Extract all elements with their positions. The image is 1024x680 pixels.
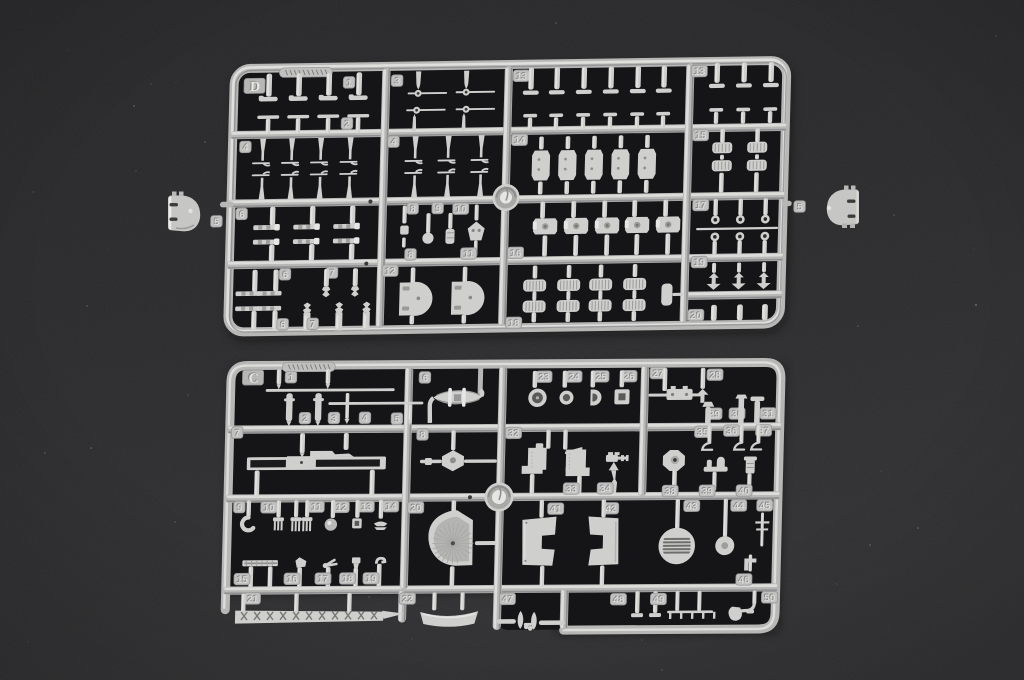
- svg-text:10: 10: [264, 503, 276, 514]
- svg-text:5: 5: [214, 217, 220, 228]
- svg-text:38: 38: [665, 487, 677, 498]
- svg-text:16: 16: [510, 249, 522, 260]
- svg-text:6: 6: [283, 270, 289, 281]
- svg-text:42: 42: [605, 504, 617, 515]
- svg-text:17: 17: [695, 201, 707, 212]
- svg-text:7: 7: [330, 268, 336, 279]
- svg-text:8: 8: [420, 430, 426, 441]
- svg-text:D: D: [250, 80, 261, 95]
- svg-text:4: 4: [391, 138, 397, 149]
- svg-text:22: 22: [402, 594, 414, 605]
- svg-text:1: 1: [289, 373, 295, 384]
- svg-text:14: 14: [386, 502, 398, 513]
- svg-text:5: 5: [394, 415, 400, 426]
- svg-text:19: 19: [366, 574, 378, 585]
- svg-text:35: 35: [697, 428, 709, 439]
- svg-text:28: 28: [710, 371, 722, 382]
- svg-text:1: 1: [347, 78, 353, 89]
- svg-text:11: 11: [464, 249, 475, 260]
- svg-text:12: 12: [336, 503, 348, 514]
- svg-text:13: 13: [694, 67, 706, 78]
- svg-text:6: 6: [239, 210, 245, 221]
- svg-text:15: 15: [695, 131, 707, 142]
- svg-text:25: 25: [596, 372, 608, 383]
- svg-text:4: 4: [363, 414, 369, 425]
- svg-text:14: 14: [514, 136, 526, 147]
- svg-text:3: 3: [395, 77, 401, 88]
- svg-text:C: C: [248, 372, 258, 387]
- svg-text:44: 44: [734, 501, 746, 512]
- svg-text:49: 49: [653, 595, 665, 606]
- svg-text:21: 21: [247, 594, 259, 605]
- svg-text:45: 45: [760, 501, 772, 512]
- svg-text:6: 6: [280, 320, 286, 331]
- svg-text:40: 40: [739, 486, 751, 497]
- svg-text:23: 23: [539, 373, 551, 384]
- svg-text:34: 34: [600, 484, 612, 495]
- svg-text:13: 13: [516, 72, 528, 83]
- svg-text:20: 20: [691, 311, 703, 322]
- svg-text:20: 20: [411, 503, 423, 514]
- svg-text:31: 31: [763, 409, 775, 420]
- svg-text:48: 48: [613, 595, 625, 606]
- svg-text:16: 16: [287, 575, 299, 586]
- svg-text:18: 18: [508, 319, 520, 330]
- svg-text:47: 47: [502, 595, 514, 606]
- svg-text:4: 4: [243, 143, 249, 154]
- svg-text:11: 11: [311, 502, 322, 513]
- svg-text:7: 7: [235, 428, 241, 439]
- svg-text:2: 2: [345, 119, 351, 130]
- svg-text:5: 5: [797, 202, 803, 213]
- svg-text:46: 46: [739, 575, 751, 586]
- svg-text:32: 32: [508, 429, 520, 440]
- svg-text:26: 26: [624, 372, 636, 383]
- svg-text:8: 8: [410, 204, 416, 215]
- svg-text:2: 2: [303, 414, 309, 425]
- svg-text:18: 18: [342, 574, 354, 585]
- svg-text:50: 50: [764, 593, 776, 604]
- svg-text:9: 9: [435, 204, 441, 215]
- svg-text:19: 19: [694, 258, 706, 269]
- svg-text:43: 43: [687, 502, 699, 513]
- svg-text:6: 6: [423, 373, 429, 384]
- svg-text:3: 3: [332, 414, 338, 425]
- svg-text:10: 10: [455, 205, 467, 216]
- svg-text:12: 12: [385, 267, 397, 278]
- svg-text:13: 13: [361, 502, 373, 513]
- svg-text:33: 33: [566, 484, 578, 495]
- svg-text:41: 41: [550, 505, 562, 516]
- svg-text:9: 9: [237, 503, 243, 514]
- svg-text:36: 36: [726, 427, 738, 438]
- svg-text:39: 39: [702, 487, 714, 498]
- svg-text:7: 7: [310, 320, 316, 331]
- svg-text:24: 24: [569, 372, 581, 383]
- svg-text:17: 17: [318, 574, 330, 585]
- svg-text:8: 8: [408, 250, 414, 261]
- svg-text:15: 15: [237, 575, 249, 586]
